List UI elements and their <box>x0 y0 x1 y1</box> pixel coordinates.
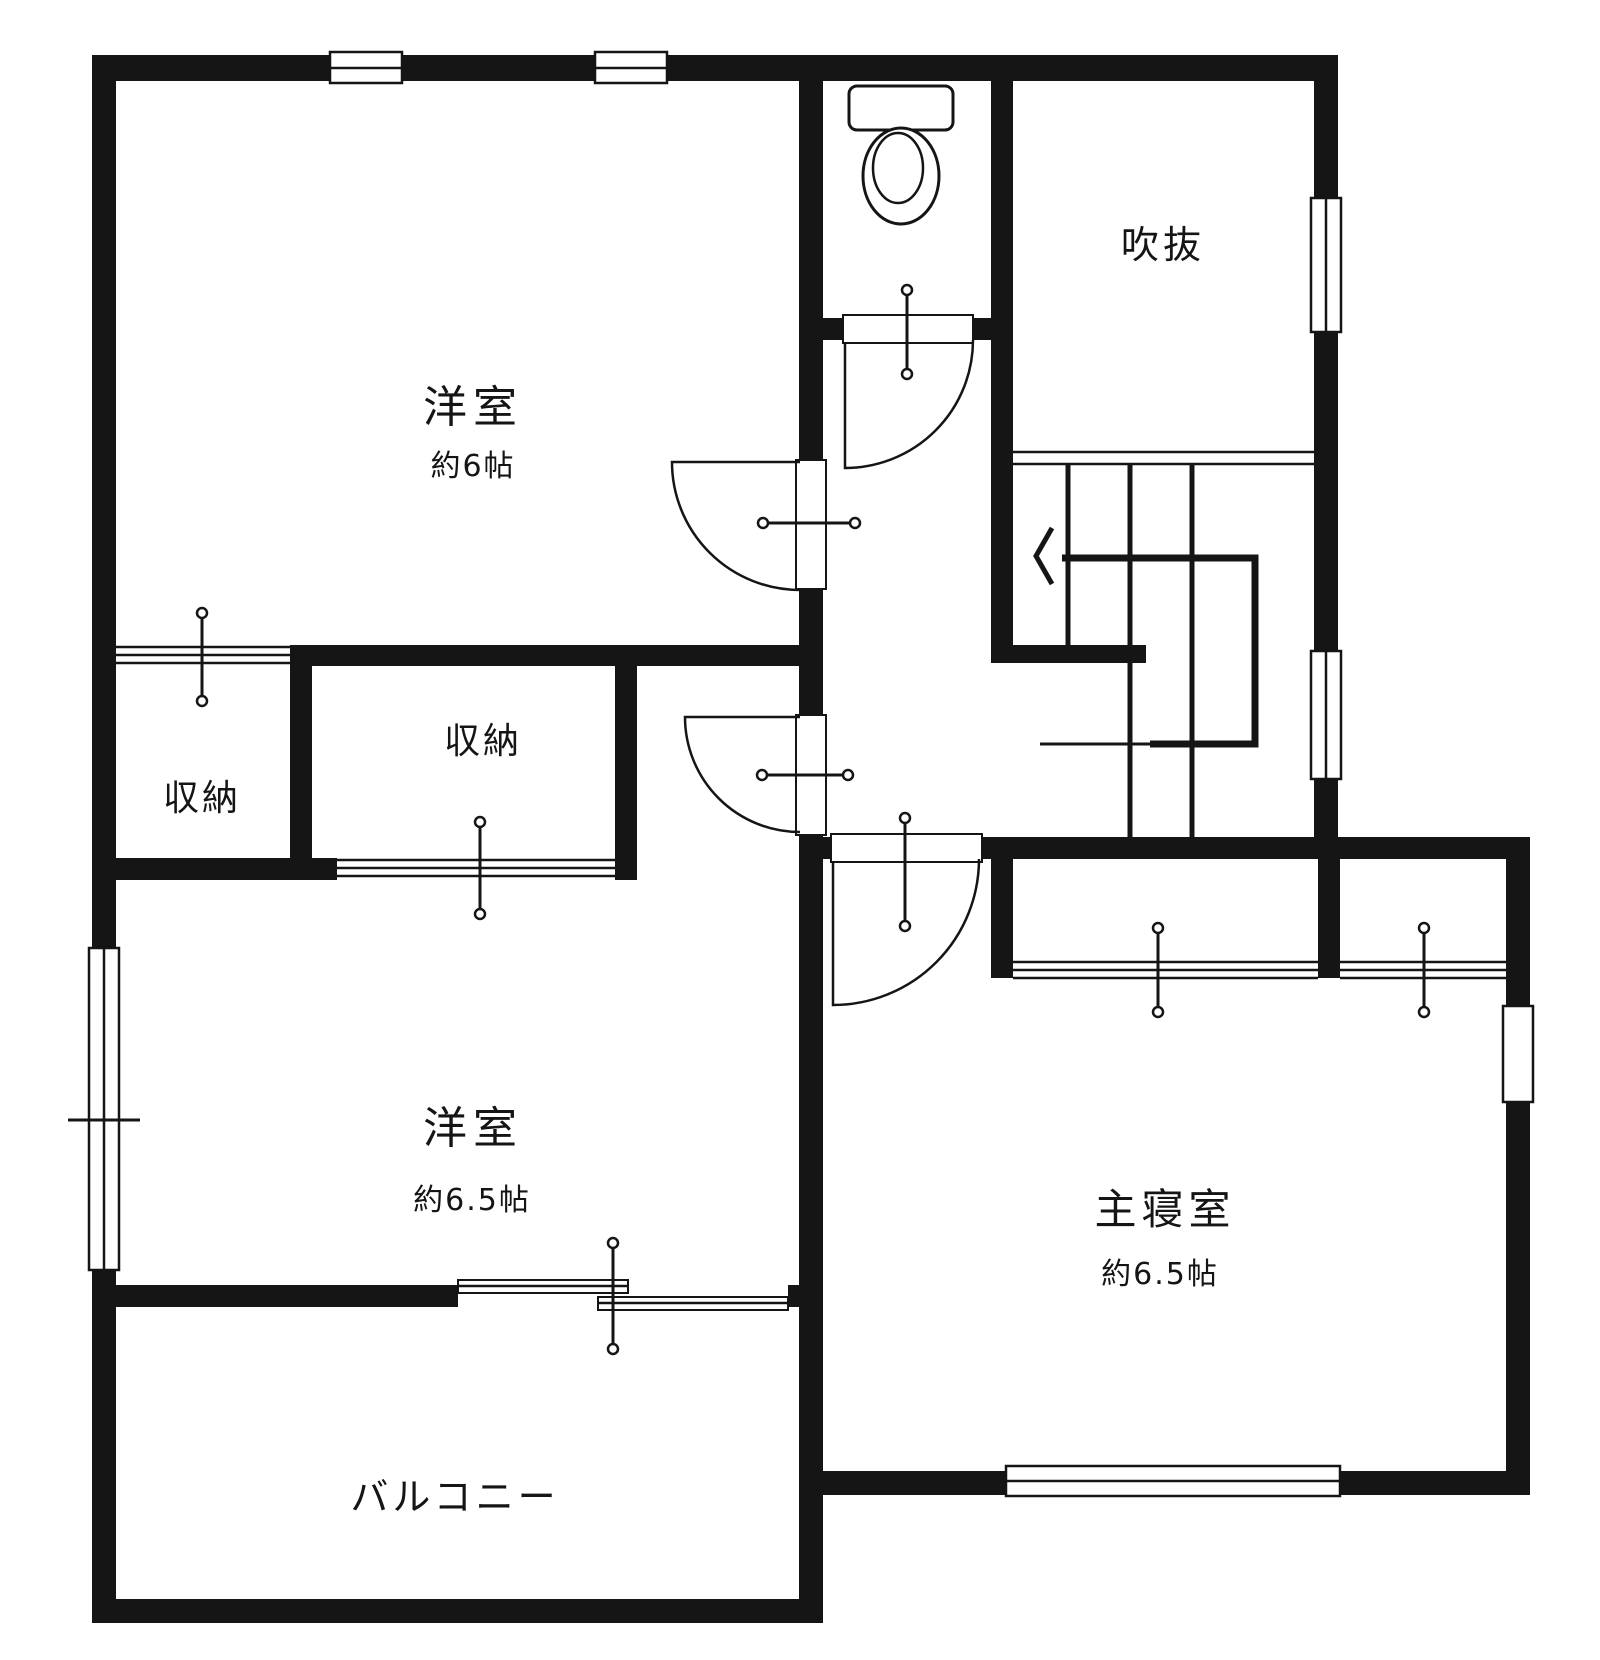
wall-bedroom-closet-left <box>991 859 1013 978</box>
label-balcony: バルコニー <box>350 1475 559 1519</box>
wall-a-horizontal <box>290 645 821 666</box>
wall-bedroom-east <box>1506 837 1530 1495</box>
marker-bedcloset-left-dot-top <box>1153 923 1163 933</box>
label-closet-left: 収納 <box>163 778 241 819</box>
marker-closet-center-dot-bottom <box>475 909 485 919</box>
label-western65-area: 約6.5帖 <box>413 1183 531 1218</box>
toilet-tank <box>849 86 953 130</box>
label-western6-area: 約6帖 <box>430 449 515 484</box>
marker-western65-dot-right <box>843 770 853 780</box>
wall-balcony-divider-right <box>788 1285 822 1307</box>
wall-outer-left <box>92 55 116 1623</box>
staircase <box>1013 452 1314 837</box>
toilet-plan-icon <box>849 86 953 224</box>
wall-c-horizontal <box>92 858 337 880</box>
marker-master-door-dot-top <box>900 813 910 823</box>
marker-closet-center-dot-top <box>475 817 485 827</box>
marker-western6-dot-right <box>850 518 860 528</box>
label-western6-name: 洋室 <box>423 382 523 433</box>
wall-stairs-mid <box>991 645 1146 663</box>
label-master-name: 主寝室 <box>1094 1185 1235 1234</box>
marker-toilet-dot-top <box>902 285 912 295</box>
label-master-area: 約6.5帖 <box>1101 1257 1219 1292</box>
wall-bedroom-closet-divider <box>1318 859 1340 978</box>
wall-outer-top <box>92 55 1338 81</box>
marker-master-door-dot-bottom <box>900 921 910 931</box>
marker-toilet-dot-bottom <box>902 369 912 379</box>
door-swing-western6 <box>672 462 800 590</box>
wall-balcony-divider-left <box>92 1285 458 1307</box>
marker-bedcloset-right-dot-bottom <box>1419 1007 1429 1017</box>
toilet-bowl-inner <box>873 133 923 203</box>
stairs-down-arrow-icon <box>1036 528 1052 584</box>
label-closet-center: 収納 <box>444 721 522 762</box>
marker-bedcloset-left-dot-bottom <box>1153 1007 1163 1017</box>
floor-plan-canvas: 洋室 約6帖 吹抜 収納 収納 洋室 約6.5帖 主寝室 約6.5帖 バルコニー <box>0 0 1600 1660</box>
marker-western65-dot-left <box>757 770 767 780</box>
wall-closet-divider <box>290 645 312 880</box>
label-western65-name: 洋室 <box>423 1103 523 1154</box>
wall-balcony-south <box>92 1599 822 1623</box>
marker-balcony-window-dot-top <box>608 1238 618 1248</box>
window-bedroom-east <box>1503 1006 1533 1102</box>
floor-plan: 洋室 約6帖 吹抜 収納 収納 洋室 約6.5帖 主寝室 約6.5帖 バルコニー <box>0 0 1600 1660</box>
marker-bedcloset-right-dot-top <box>1419 923 1429 933</box>
marker-balcony-window-dot-bottom <box>608 1344 618 1354</box>
marker-closet-left-dot-bottom <box>197 696 207 706</box>
label-void: 吹抜 <box>1121 223 1205 267</box>
wall-central <box>799 55 823 1623</box>
marker-closet-left-dot-top <box>197 608 207 618</box>
marker-western6-dot-left <box>758 518 768 528</box>
wall-toilet-right-stairs-left <box>991 78 1013 648</box>
wall-closet-right <box>615 645 637 880</box>
door-swing-toilet <box>845 340 973 468</box>
